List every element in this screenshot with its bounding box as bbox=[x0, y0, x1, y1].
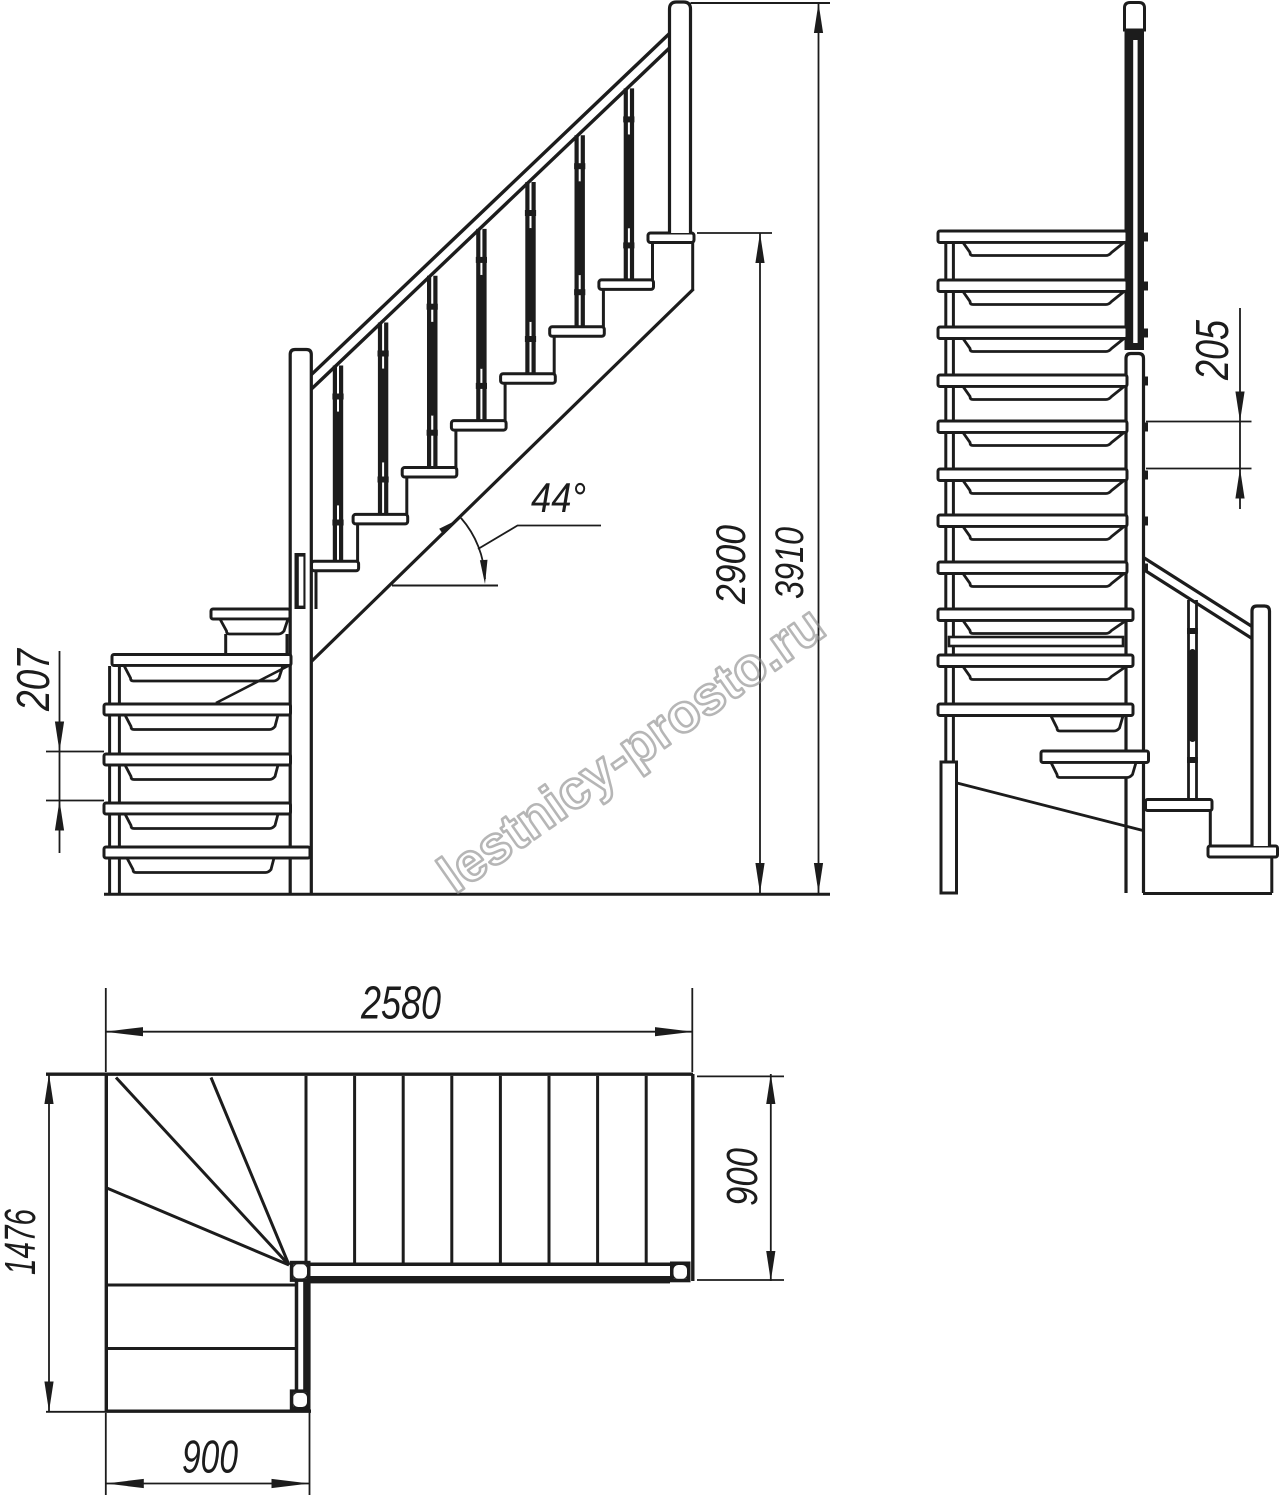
svg-text:2900: 2900 bbox=[707, 524, 754, 604]
svg-text:44°: 44° bbox=[531, 474, 586, 521]
svg-text:1476: 1476 bbox=[0, 1209, 45, 1275]
svg-text:205: 205 bbox=[1186, 320, 1238, 381]
svg-text:900: 900 bbox=[182, 1431, 238, 1483]
svg-text:900: 900 bbox=[718, 1148, 767, 1206]
svg-text:2580: 2580 bbox=[360, 977, 441, 1029]
svg-text:207: 207 bbox=[7, 648, 59, 712]
svg-text:3910: 3910 bbox=[768, 527, 812, 599]
